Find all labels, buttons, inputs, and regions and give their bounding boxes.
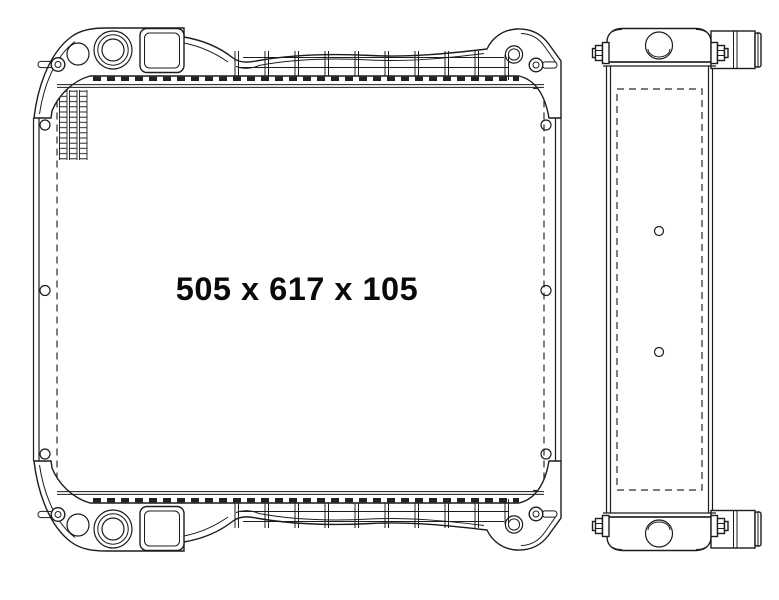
top-tank [34, 28, 561, 118]
dimension-label: 505 x 617 x 105 [176, 271, 418, 307]
bottom-tank [34, 461, 561, 551]
side-core-dashed-outline [617, 89, 702, 490]
fin-detail-block [59, 90, 88, 160]
front-view: 505 x 617 x 105 [34, 28, 562, 551]
side-bottom-tank [593, 511, 762, 551]
side-top-tank [593, 29, 762, 69]
side-channel-right [556, 118, 562, 461]
side-holes [655, 227, 664, 357]
drawing-svg: 505 x 617 x 105 [0, 0, 779, 600]
radiator-technical-drawing: 505 x 617 x 105 [0, 0, 779, 600]
side-core-edges [607, 66, 713, 513]
side-channel-left [34, 118, 40, 461]
side-view [593, 29, 762, 551]
